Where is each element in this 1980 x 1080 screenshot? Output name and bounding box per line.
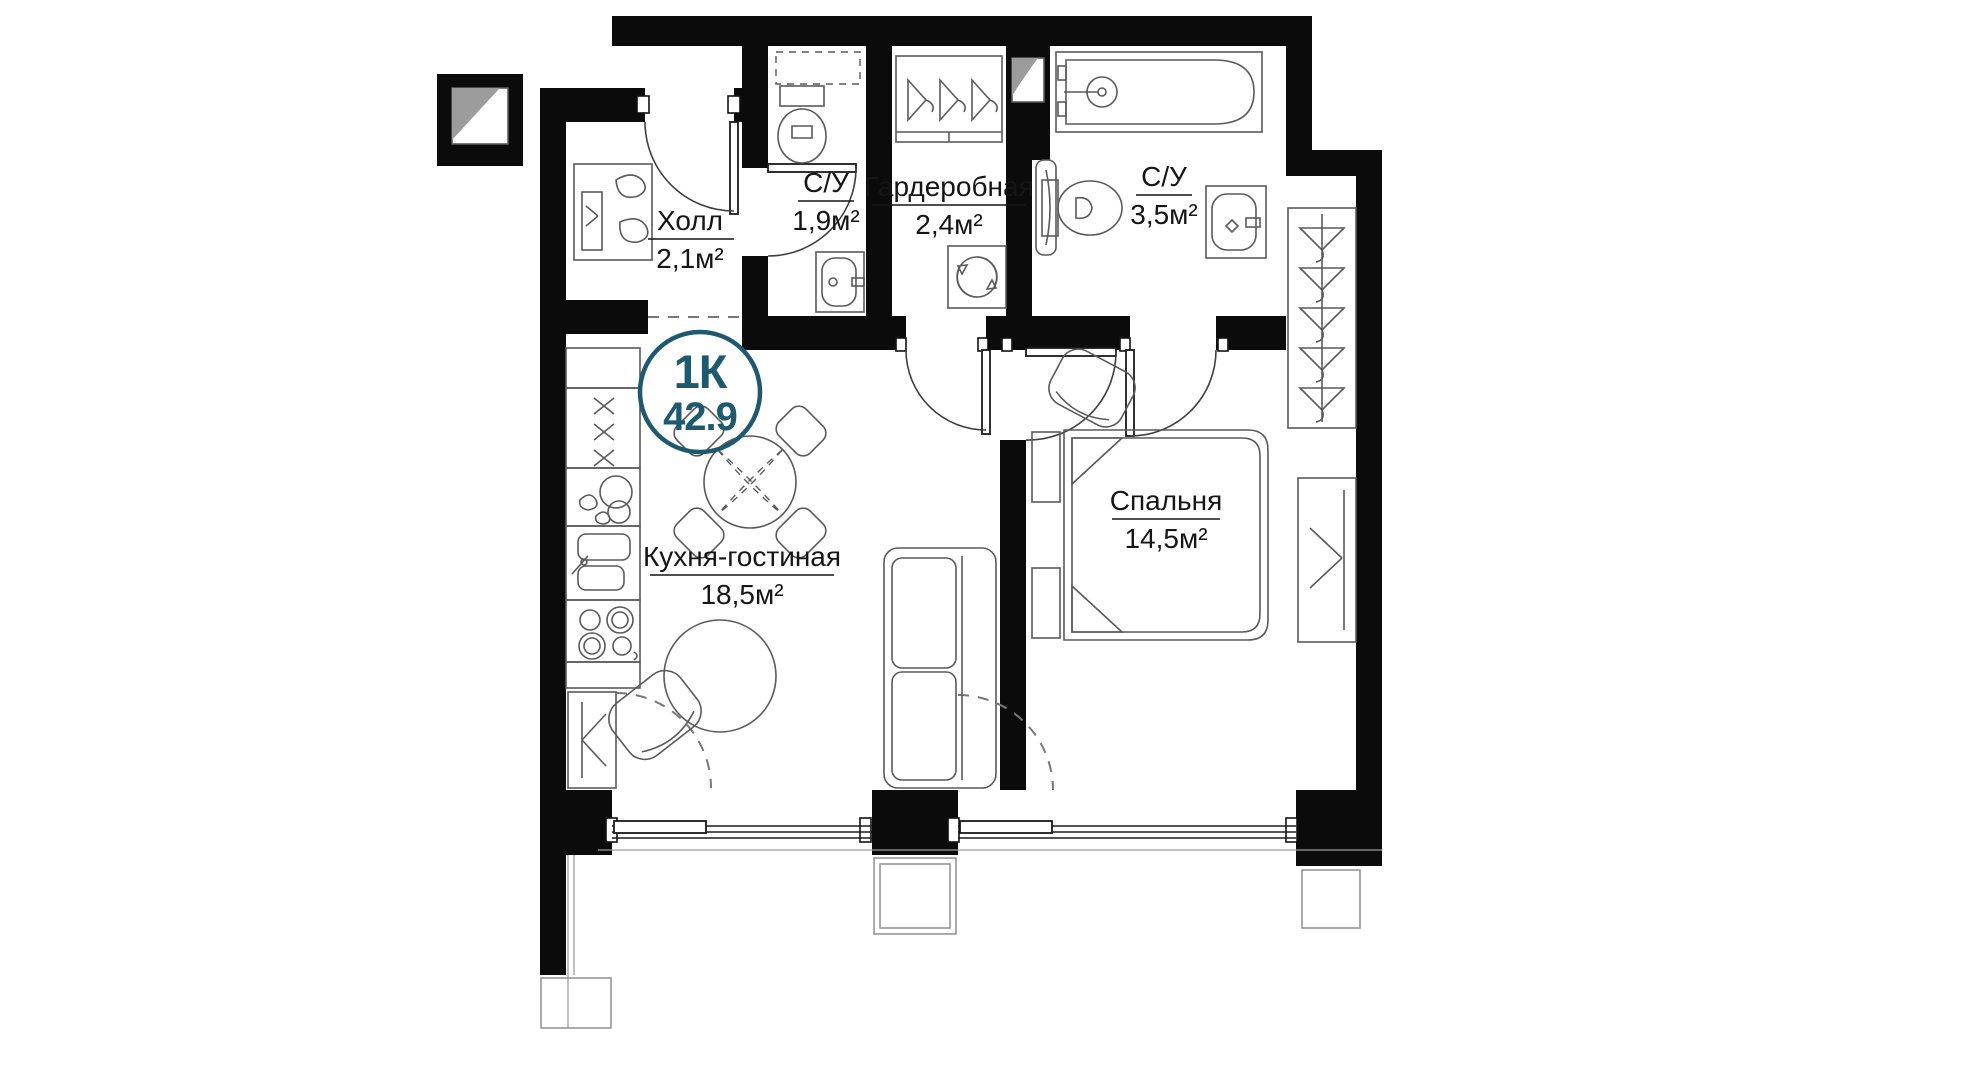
svg-text:С/У: С/У [803,167,849,198]
bathtub-icon [1056,52,1262,132]
wardrobe-rail [896,56,1002,142]
washing-machine-icon [948,246,1006,308]
bedroom-window [948,818,1297,842]
svg-text:1,9м²: 1,9м² [792,205,860,236]
wardrobe-door [896,338,990,434]
stove-icon [566,600,640,662]
svg-text:2,4м²: 2,4м² [915,209,983,240]
svg-text:Кухня-гостиная: Кухня-гостиная [643,541,841,572]
bedroom-wardrobe-hangers [1288,208,1356,428]
dresser [1298,478,1356,642]
nightstand [1032,432,1060,502]
svg-text:Гардеробная: Гардеробная [864,171,1033,202]
svg-text:14,5м²: 14,5м² [1124,523,1207,554]
dish-rack-icon [566,468,640,526]
floor-plan-drawing: Холл 2,1м² С/У 1,9м² Гардеробная 2,4м² С… [0,0,1980,1080]
room-label-bedroom: Спальня 14,5м² [1110,485,1223,554]
kitchen-window [606,818,872,842]
svg-text:2,1м²: 2,1м² [656,243,724,274]
fridge-icon [566,388,640,468]
radiator-icon [1036,160,1056,255]
balcony-door-arc [616,693,1053,790]
sofa [884,548,996,788]
unit-total-area: 42.9 [663,395,737,439]
svg-text:Спальня: Спальня [1110,485,1223,516]
kitchen-sink-icon [566,526,640,600]
facade-lines [541,850,1382,1028]
svg-text:Холл: Холл [657,205,723,236]
wc-big-door [1120,338,1228,436]
floor-plan-page: Холл 2,1м² С/У 1,9м² Гардеробная 2,4м² С… [0,0,1980,1080]
kitchen-run [566,348,640,688]
unit-badge: 1К 42.9 [640,332,760,452]
rug-circle [664,620,776,732]
shoe-cabinet [574,164,652,260]
svg-text:18,5м²: 18,5м² [700,579,783,610]
walls [437,16,1382,975]
nightstand [1032,568,1060,638]
toilet-icon [778,86,826,163]
armchair [601,663,709,768]
room-label-wc-small: С/У 1,9м² [792,167,860,236]
toilet-icon [1042,180,1122,236]
tv-stand [568,692,616,788]
unit-rooms-count: 1К [674,345,728,398]
room-label-kitchen-living: Кухня-гостиная 18,5м² [643,541,841,610]
room-label-wc-big: С/У 3,5м² [1130,161,1198,230]
svg-text:3,5м²: 3,5м² [1130,199,1198,230]
room-label-hall: Холл 2,1м² [648,205,734,274]
sink-icon [816,252,864,312]
sink-icon [1206,186,1266,258]
svg-text:С/У: С/У [1141,161,1187,192]
